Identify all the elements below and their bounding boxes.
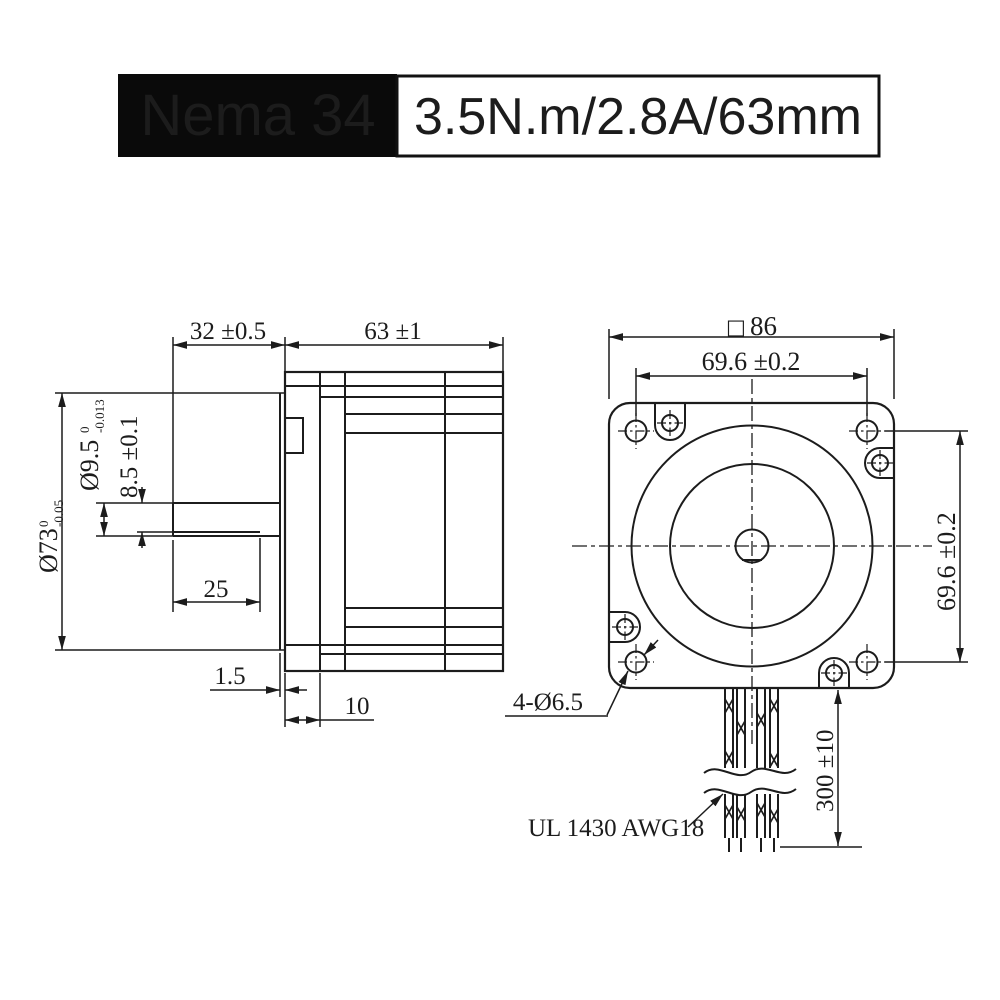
dim-pilot-diameter-value: Ø73 [34,528,63,573]
wire-spec-label: UL 1430 AWG18 [528,815,704,842]
dim-hole-spacing-horizontal: 69.6 ±0.2 [702,347,801,376]
dim-flat-length: 25 [204,576,229,603]
dim-shaft-diameter-value: Ø9.5 [75,440,104,491]
front-face-detail [285,418,303,453]
dim-shaft-diameter-tol-upper: 0 [77,427,92,434]
dim-lead-length-value: 300 ±10 [812,730,839,812]
shaft [173,503,280,536]
dim-pilot-depth: 1.5 [214,663,245,690]
side-view-dimensions: 32 ±0.5 63 ±1 25 1.5 10 Ø9.5 0 -0.013 8.… [34,318,503,727]
dim-square-size: 86 [750,311,777,341]
dim-shaft-flat: 8.5 ±0.1 [116,416,143,498]
dim-shaft-diameter: Ø9.5 0 -0.013 [75,399,107,491]
front-view-outline [572,379,932,744]
dim-pilot-diameter: Ø73 0 -0.05 [34,500,66,573]
model-title: Nema 34 [140,83,375,148]
motor-drawing-page: Nema 34 3.5N.m/2.8A/63mm [0,0,1000,1000]
spec-title: 3.5N.m/2.8A/63mm [414,88,862,146]
dim-shaft-length: 32 ±0.5 [190,318,266,345]
dim-mounting-holes: 4-Ø6.5 [513,689,583,716]
side-view-outline [173,372,503,671]
dim-shaft-diameter-tol-lower: -0.013 [92,399,107,433]
front-view: □ 86 69.6 ±0.2 69.6 ±0.2 4-Ø6.5 300 ±10 … [505,311,968,852]
lead-wires [704,689,796,852]
dim-pilot-diameter-tol-upper: 0 [36,521,51,528]
dim-pilot-diameter-tol-lower: -0.05 [51,500,66,527]
side-view: 32 ±0.5 63 ±1 25 1.5 10 Ø9.5 0 -0.013 8.… [34,318,503,727]
dim-hole-spacing-vertical: 69.6 ±0.2 [932,512,961,611]
dim-shaft-flat-value: 8.5 ±0.1 [116,416,143,498]
dim-lead-length: 300 ±10 [812,730,839,812]
dim-hole-spacing-vertical-value: 69.6 ±0.2 [932,512,961,611]
technical-drawing: Nema 34 3.5N.m/2.8A/63mm [0,0,1000,1000]
dim-flange-depth: 10 [345,693,370,720]
header-banner: Nema 34 3.5N.m/2.8A/63mm [118,74,879,157]
dim-square-symbol: □ [726,315,746,339]
dim-body-length: 63 ±1 [364,318,421,345]
